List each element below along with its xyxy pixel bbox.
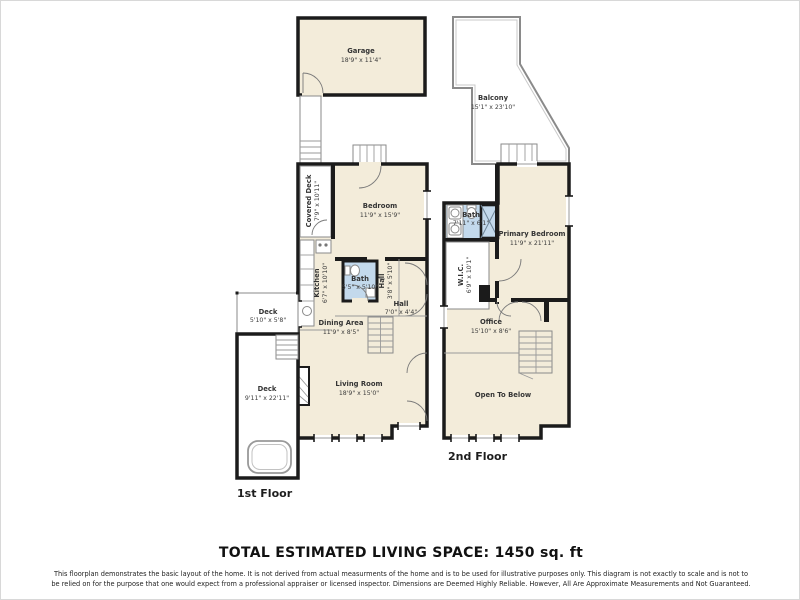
deck-large-label: Deck	[258, 385, 277, 393]
kitchen-appliance	[316, 240, 331, 253]
wic-label: W.I.C.	[457, 264, 465, 286]
dining-dims: 11'9" x 8'5"	[323, 329, 360, 336]
floorplan-canvas: Garage 18'9" x 11'4" Covered Deck 7'9" x…	[1, 1, 800, 600]
hall-dims: 7'0" x 4'4"	[385, 309, 418, 316]
deck-small-dims: 5'10" x 5'8"	[250, 317, 287, 324]
bedroom-label: Bedroom	[363, 202, 397, 210]
garage-label: Garage	[347, 47, 375, 55]
bath-f1-label: Bath	[351, 275, 369, 283]
kitchen-label: Kitchen	[313, 268, 321, 297]
balcony-label: Balcony	[478, 94, 509, 102]
floorplan-page: Garage 18'9" x 11'4" Covered Deck 7'9" x…	[0, 0, 800, 600]
toilet-f1	[345, 266, 350, 275]
second-floor-plan: Balcony 15'1" x 23'10" Bath 7'11" x 6'1"…	[440, 17, 573, 463]
hall-side-dims: 3'8" x 5'10"	[387, 263, 394, 300]
hall-side-label: Hall	[378, 274, 386, 289]
kitchen-counter	[300, 240, 314, 326]
office-label: Office	[480, 318, 502, 326]
bath-f1-dims: 5'5" x 5'10"	[342, 284, 379, 291]
bath-f2-label: Bath	[462, 211, 480, 219]
disclaimer-line-2: be relied on for the purpose that one wo…	[1, 580, 800, 590]
covered-deck-label: Covered Deck	[305, 174, 313, 227]
disclaimer-line-1: This floorplan demonstrates the basic la…	[1, 570, 800, 580]
first-floor-plan: Garage 18'9" x 11'4" Covered Deck 7'9" x…	[236, 18, 432, 500]
wall-covereddeck-bedroom	[331, 164, 335, 239]
dining-label: Dining Area	[318, 319, 363, 327]
bath-f2-dims: 7'11" x 6'1"	[453, 220, 490, 227]
deck-small-label: Deck	[259, 308, 278, 316]
living-label: Living Room	[335, 380, 382, 388]
wall-stub	[544, 302, 549, 322]
second-floor-title: 2nd Floor	[448, 450, 508, 463]
primary-bedroom-label: Primary Bedroom	[499, 230, 566, 238]
hot-tub	[248, 441, 291, 473]
room-balcony	[453, 17, 569, 164]
chase	[479, 285, 490, 302]
wall-bath-wic	[444, 238, 498, 242]
disclaimer: This floorplan demonstrates the basic la…	[1, 570, 800, 589]
balcony-dims: 15'1" x 23'10"	[471, 104, 515, 111]
bedroom-dims: 11'9" x 15'9"	[360, 212, 400, 219]
kitchen-dims: 6'7" x 10'10"	[322, 263, 329, 303]
open-to-below-label: Open To Below	[475, 391, 532, 399]
primary-bedroom-dims: 11'9" x 21'11"	[510, 240, 554, 247]
office-dims: 15'10" x 8'6"	[471, 328, 511, 335]
hall-label: Hall	[394, 300, 409, 308]
garage-dims: 18'9" x 11'4"	[341, 57, 381, 64]
deck-large-dims: 9'11" x 22'11"	[245, 395, 289, 402]
total-living-space: TOTAL ESTIMATED LIVING SPACE: 1450 sq. f…	[1, 545, 800, 561]
covered-deck-dims: 7'9" x 10'11"	[314, 181, 321, 221]
wic-dims: 6'9" x 10'1"	[466, 257, 473, 294]
living-dims: 18'9" x 15'0"	[339, 390, 379, 397]
first-floor-title: 1st Floor	[237, 487, 293, 500]
